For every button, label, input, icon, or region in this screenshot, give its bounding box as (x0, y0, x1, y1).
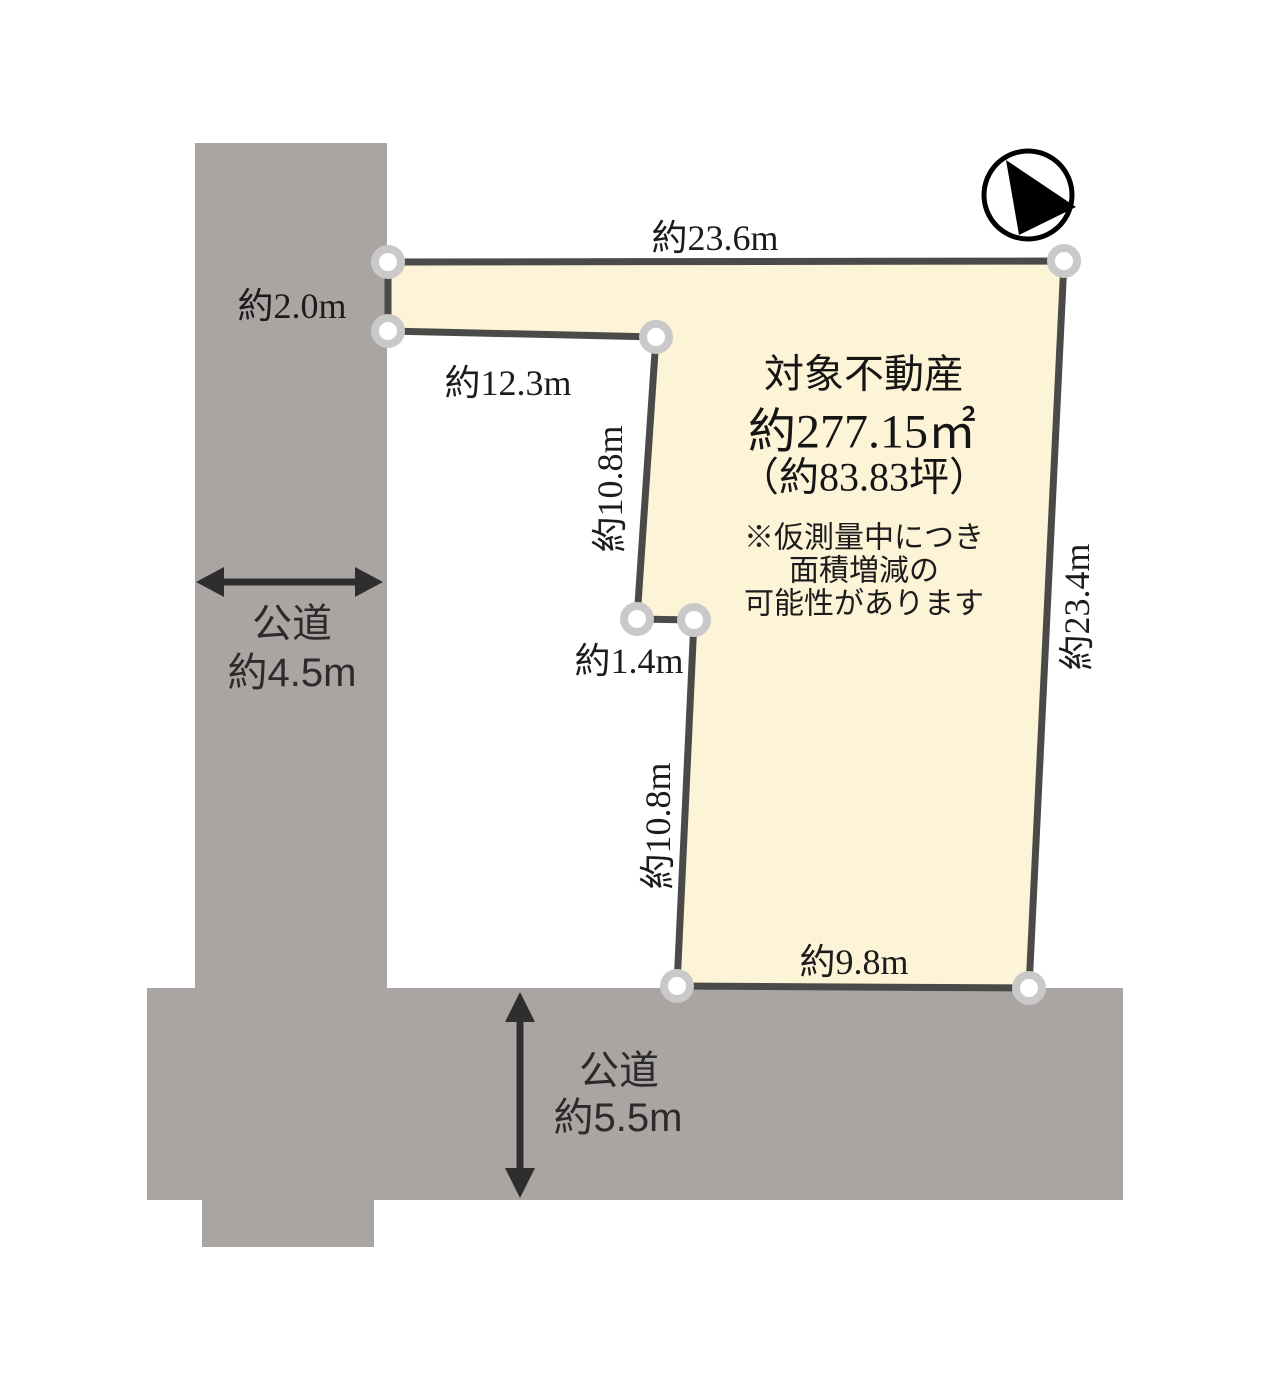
vertex-left-lower (375, 318, 401, 344)
left-road-name: 公道 (252, 602, 332, 646)
parcel-area-tsubo: （約83.83坪） (739, 455, 989, 500)
left-road-tail-shape (202, 1200, 374, 1247)
vertex-mid-upper (643, 324, 669, 350)
dim-top-label: 約23.6m (651, 218, 778, 258)
dim-bottom-label: 約9.8m (799, 942, 908, 982)
dim-left-upper-label: 約2.0m (237, 286, 346, 326)
dim-right-label: 約23.4m (1057, 543, 1097, 670)
bottom-road-name: 公道 (579, 1049, 659, 1093)
vertex-jog-right (681, 607, 707, 633)
vertex-top-right (1051, 248, 1077, 274)
parcel-note-line3: 可能性があります (744, 588, 984, 621)
parcel-note-line1: ※仮測量中につき (744, 522, 984, 555)
parcel-note-line2: 面積増減の (789, 555, 939, 588)
left-road-width: 約4.5m (228, 651, 357, 695)
vertex-top-left (375, 249, 401, 275)
vertex-jog-left (624, 606, 650, 632)
dim-mid-vertical-lower-label: 約10.8m (638, 762, 678, 889)
vertex-bottom-left (664, 973, 690, 999)
dim-mid-vertical-upper-label: 約10.8m (590, 425, 630, 552)
north-arrow-icon (984, 151, 1076, 239)
bottom-road-width: 約5.5m (554, 1096, 683, 1140)
land-plot-diagram: 約23.6m 約2.0m 約12.3m 約10.8m 約1.4m 約10.8m … (0, 0, 1272, 1394)
plot-diagram-svg: 約23.6m 約2.0m 約12.3m 約10.8m 約1.4m 約10.8m … (0, 0, 1272, 1394)
dim-jog-label: 約1.4m (574, 641, 683, 681)
vertex-bottom-right (1016, 975, 1042, 1001)
dim-upper-horizontal-label: 約12.3m (444, 363, 571, 403)
parcel-title: 対象不動産 (764, 352, 964, 397)
bottom-road-shape (147, 988, 1123, 1200)
parcel-area-m2: 約277.15㎡ (748, 406, 976, 459)
